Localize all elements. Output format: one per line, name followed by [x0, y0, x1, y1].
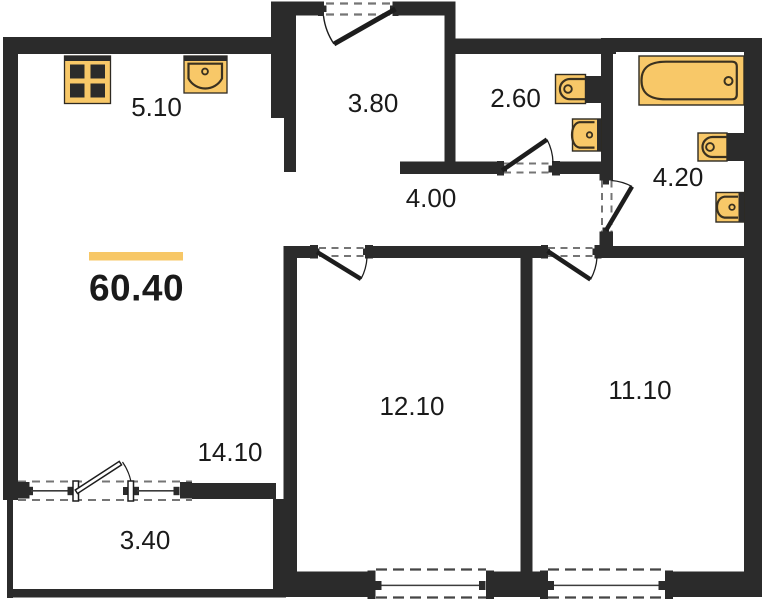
svg-text:5.10: 5.10 — [131, 92, 182, 122]
svg-text:12.10: 12.10 — [379, 391, 444, 421]
svg-text:3.40: 3.40 — [120, 525, 171, 555]
svg-text:60.40: 60.40 — [89, 268, 184, 309]
svg-text:14.10: 14.10 — [197, 437, 262, 467]
svg-text:4.00: 4.00 — [406, 183, 457, 213]
svg-text:3.80: 3.80 — [348, 88, 399, 118]
svg-text:4.20: 4.20 — [653, 162, 704, 192]
svg-text:11.10: 11.10 — [608, 375, 671, 405]
svg-text:2.60: 2.60 — [490, 83, 541, 113]
